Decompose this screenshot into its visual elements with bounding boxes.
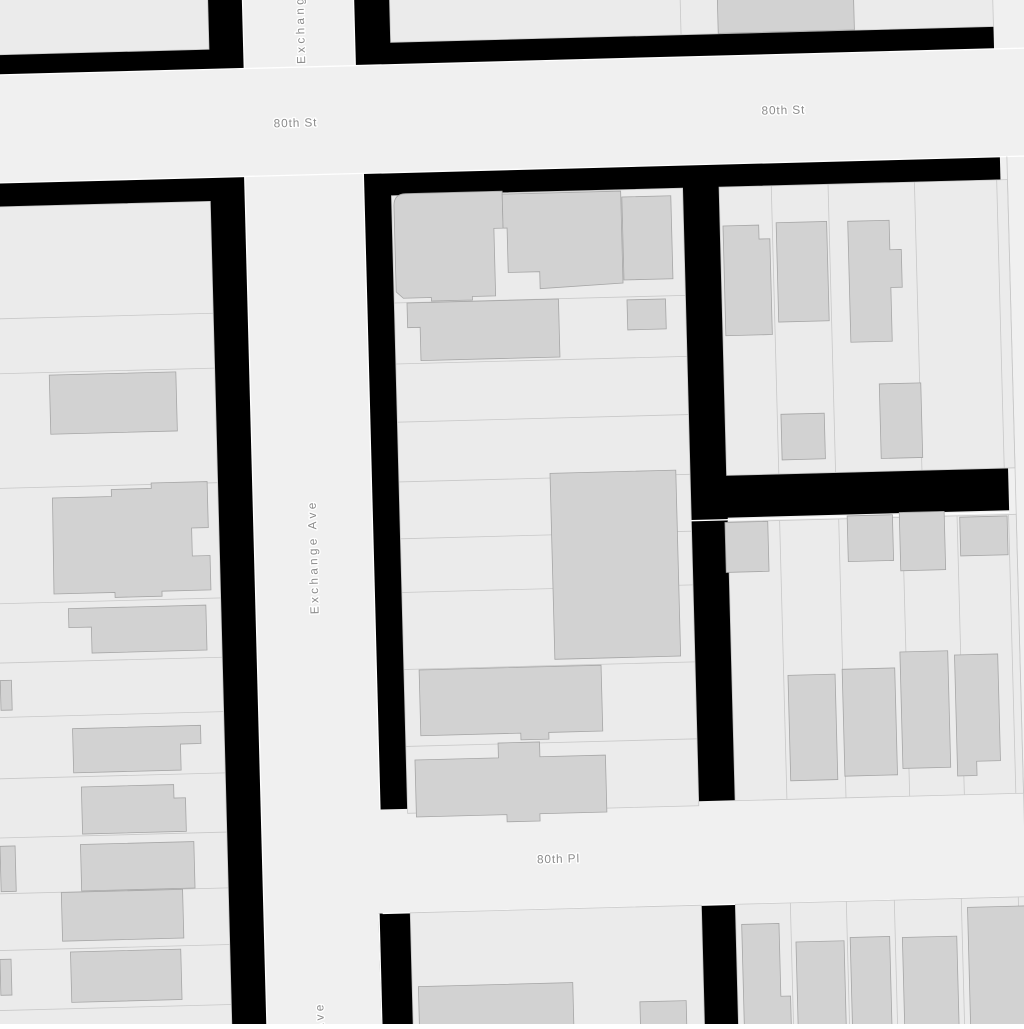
svg-text:Exchange Ave: Exchange Ave — [291, 0, 308, 64]
svg-text:80th St: 80th St — [274, 115, 318, 130]
svg-text:80th Pl: 80th Pl — [537, 851, 580, 866]
svg-text:80th St: 80th St — [761, 102, 805, 117]
